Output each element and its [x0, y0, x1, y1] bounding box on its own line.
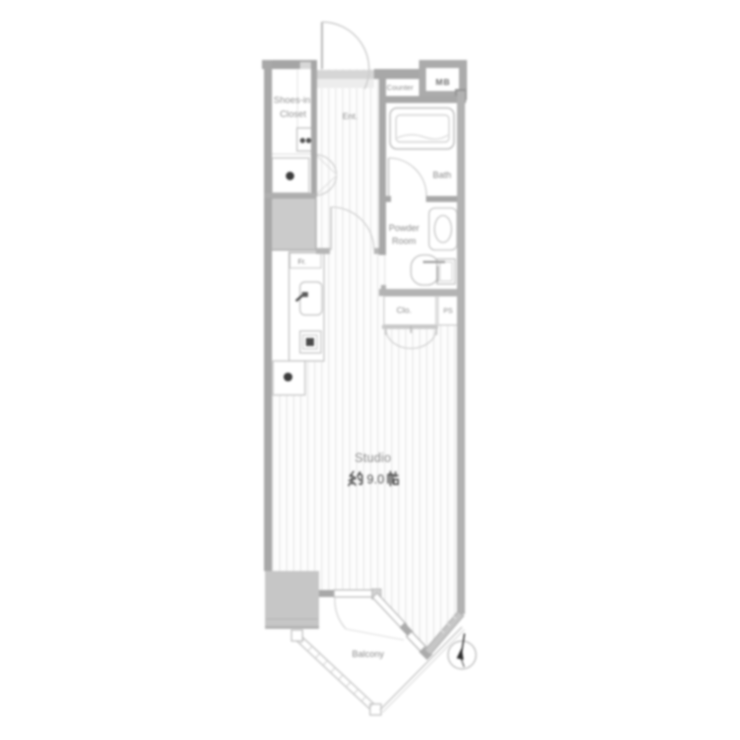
- svg-text:MB: MB: [436, 77, 451, 87]
- svg-text:Bath: Bath: [433, 170, 452, 180]
- svg-text:Ent.: Ent.: [342, 111, 357, 121]
- svg-text:9.0: 9.0: [367, 473, 384, 487]
- svg-text:Room: Room: [392, 236, 416, 246]
- svg-text:Counter: Counter: [387, 83, 414, 92]
- svg-text:Shoes-in: Shoes-in: [274, 95, 311, 105]
- svg-text:Studio: Studio: [355, 451, 392, 465]
- svg-text:Fr.: Fr.: [298, 259, 306, 266]
- svg-text:Balcony: Balcony: [352, 649, 385, 659]
- svg-text:Powder: Powder: [389, 223, 420, 233]
- svg-text:PS: PS: [443, 308, 453, 315]
- svg-text:Clo.: Clo.: [396, 305, 411, 315]
- svg-text:Closet: Closet: [280, 109, 307, 119]
